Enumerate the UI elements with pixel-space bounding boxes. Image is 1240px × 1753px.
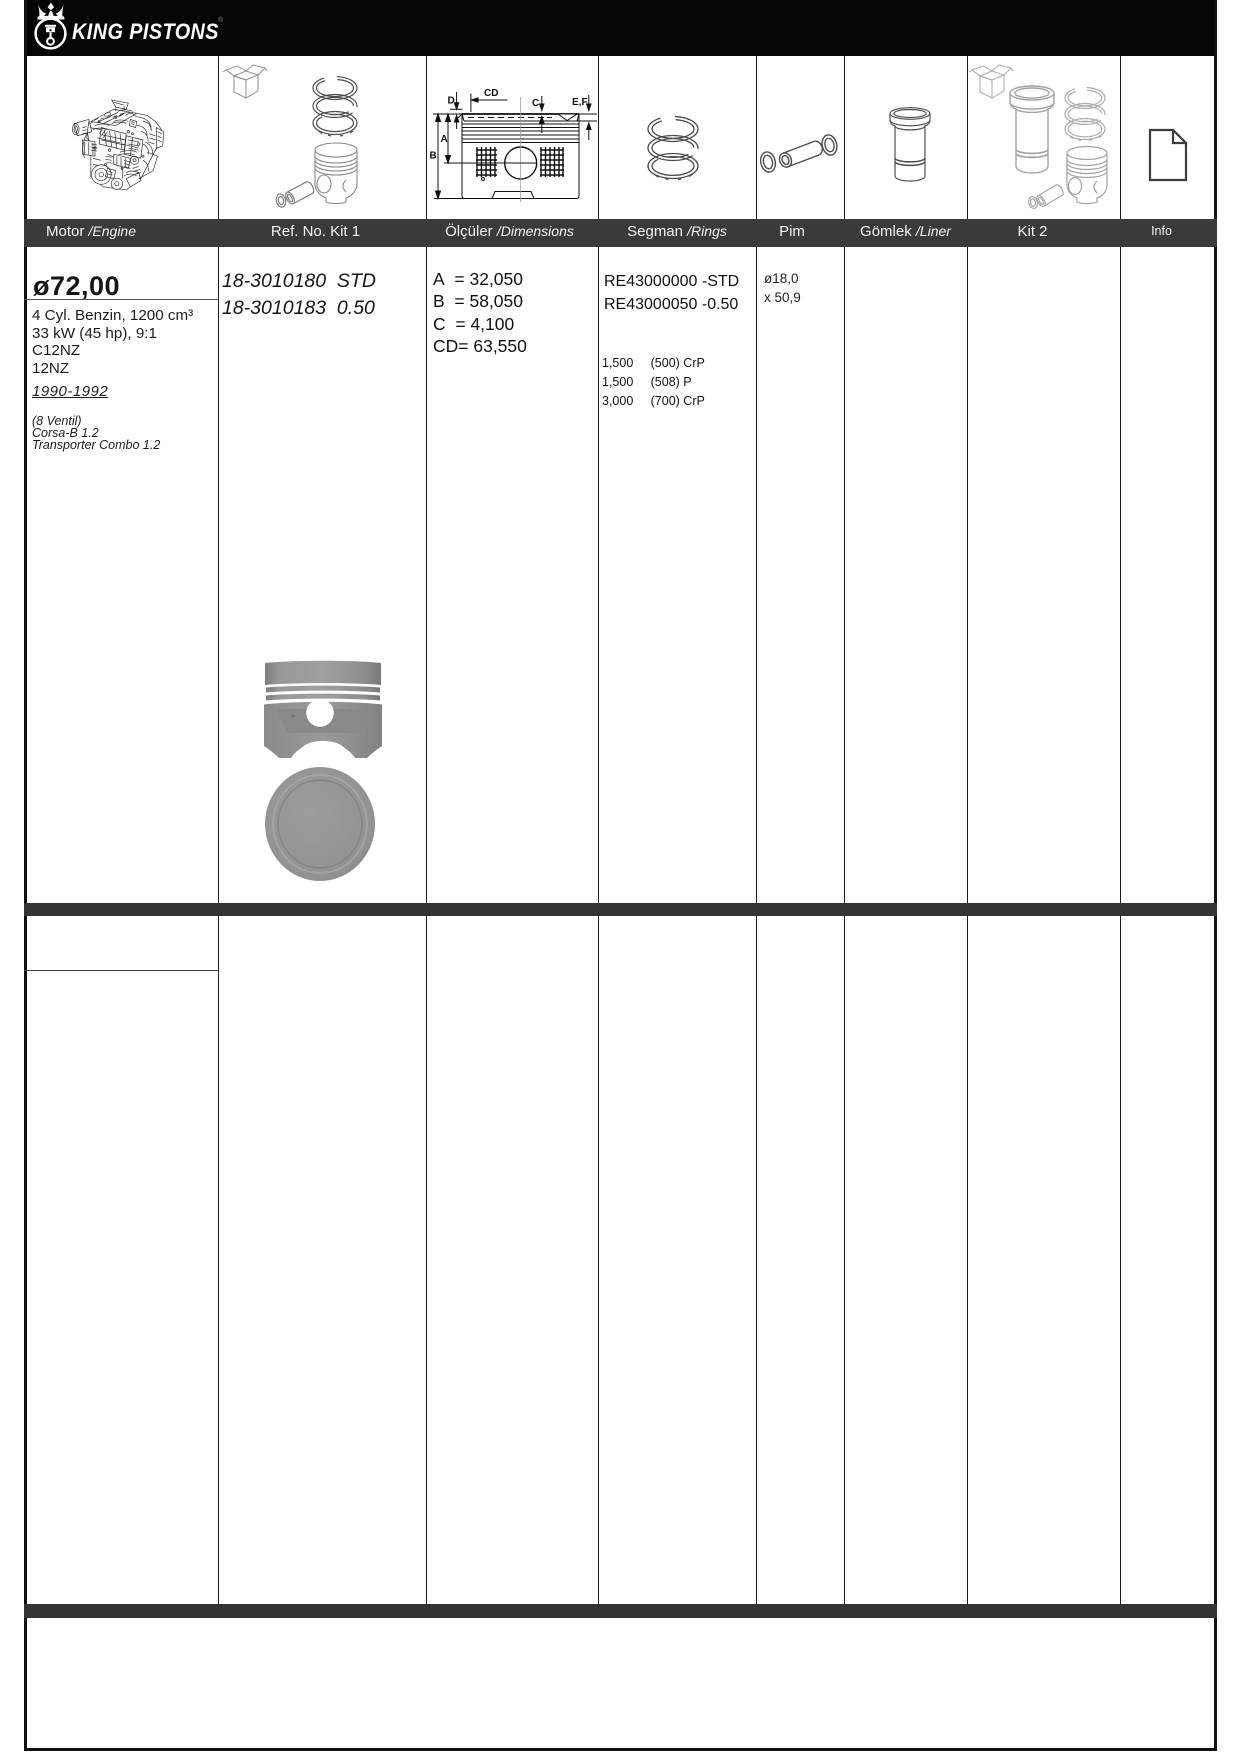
svg-text:D: D [448, 96, 455, 107]
svg-text:A: A [441, 134, 448, 145]
svg-text:C: C [532, 98, 539, 109]
svg-text:CD: CD [484, 88, 498, 99]
svg-text:B: B [430, 151, 437, 162]
svg-text:E,F: E,F [572, 97, 588, 108]
